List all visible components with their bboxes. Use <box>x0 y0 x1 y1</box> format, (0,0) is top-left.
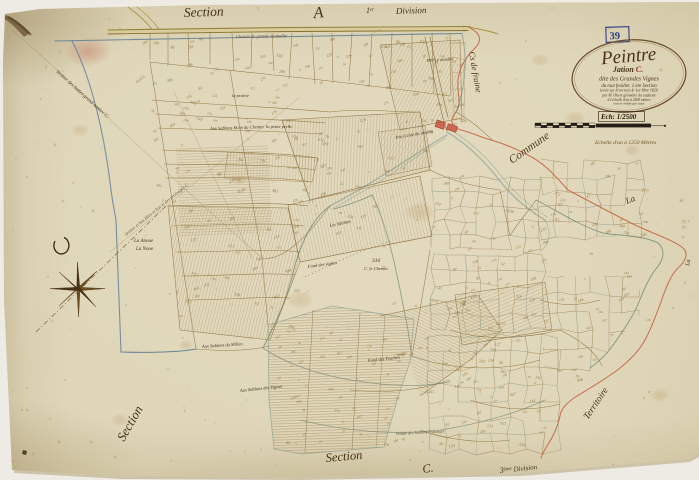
svg-text:358: 358 <box>412 91 419 97</box>
svg-text:206: 206 <box>578 354 584 359</box>
svg-text:91: 91 <box>242 187 246 192</box>
svg-text:164: 164 <box>183 118 189 123</box>
svg-text:210: 210 <box>381 45 387 49</box>
svg-text:190: 190 <box>443 181 449 185</box>
svg-text:358: 358 <box>516 295 522 299</box>
svg-text:86: 86 <box>199 36 204 42</box>
svg-text:42: 42 <box>286 441 290 445</box>
svg-text:121: 121 <box>388 155 394 161</box>
svg-text:La Anoue: La Anoue <box>133 239 154 244</box>
svg-text:287: 287 <box>319 131 325 136</box>
svg-text:61: 61 <box>682 225 687 230</box>
svg-text:355: 355 <box>260 55 266 59</box>
svg-text:visé et vérifié par nous: visé et vérifié par nous <box>614 102 646 106</box>
svg-text:Ech: 1/2500: Ech: 1/2500 <box>600 113 637 121</box>
svg-text:La Noue: La Noue <box>135 247 154 252</box>
svg-text:120: 120 <box>359 117 366 123</box>
svg-text:Echelle d'un à 1250 Mètres: Echelle d'un à 1250 Mètres <box>594 140 656 146</box>
svg-text:201: 201 <box>479 358 486 364</box>
svg-text:383: 383 <box>439 441 445 446</box>
svg-text:192: 192 <box>359 80 365 84</box>
svg-text:La: La <box>685 259 692 267</box>
svg-text:20: 20 <box>294 137 298 141</box>
svg-text:264: 264 <box>256 257 262 261</box>
svg-text:113: 113 <box>646 318 651 322</box>
svg-text:Jation C.: Jation C. <box>612 65 643 74</box>
svg-text:299: 299 <box>592 222 598 227</box>
svg-text:135: 135 <box>387 85 392 90</box>
svg-text:164: 164 <box>499 385 505 390</box>
svg-text:301: 301 <box>294 231 300 235</box>
svg-text:180: 180 <box>305 64 311 69</box>
svg-text:121: 121 <box>287 119 292 123</box>
svg-text:273: 273 <box>185 300 191 304</box>
svg-text:134: 134 <box>488 357 494 363</box>
svg-text:107: 107 <box>302 142 308 147</box>
svg-text:83: 83 <box>267 227 271 232</box>
svg-text:351: 351 <box>228 243 234 248</box>
svg-text:368: 368 <box>465 308 470 312</box>
svg-text:389: 389 <box>397 59 403 63</box>
svg-text:160: 160 <box>247 120 252 124</box>
svg-text:365: 365 <box>272 101 278 105</box>
svg-text:Section: Section <box>184 4 224 20</box>
svg-text:321: 321 <box>500 420 507 426</box>
svg-text:238: 238 <box>572 368 577 372</box>
svg-text:la petite prelle: la petite prelle <box>266 124 292 129</box>
svg-text:128: 128 <box>268 61 273 65</box>
svg-text:180: 180 <box>236 178 241 182</box>
svg-text:207: 207 <box>447 307 453 311</box>
svg-text:311: 311 <box>429 390 435 394</box>
svg-text:398: 398 <box>194 294 200 298</box>
svg-text:141: 141 <box>559 298 565 302</box>
svg-text:53: 53 <box>316 47 320 51</box>
svg-text:377: 377 <box>346 54 353 59</box>
svg-text:341: 341 <box>320 355 326 359</box>
svg-text:242: 242 <box>356 226 362 230</box>
svg-text:358: 358 <box>357 145 363 149</box>
svg-text:la prairie: la prairie <box>232 93 249 98</box>
svg-text:133: 133 <box>212 94 217 98</box>
svg-text:328: 328 <box>293 224 299 229</box>
svg-text:256: 256 <box>480 430 486 434</box>
svg-text:168: 168 <box>153 41 159 45</box>
svg-text:127: 127 <box>285 269 290 273</box>
svg-text:137: 137 <box>539 431 544 435</box>
svg-text:116: 116 <box>598 310 603 314</box>
svg-text:163: 163 <box>296 400 302 404</box>
svg-text:375: 375 <box>328 388 334 392</box>
svg-text:32: 32 <box>501 262 505 266</box>
svg-text:183: 183 <box>557 369 562 373</box>
svg-text:382: 382 <box>302 188 308 193</box>
svg-text:319: 319 <box>322 141 328 146</box>
svg-text:295: 295 <box>382 338 388 342</box>
svg-text:368: 368 <box>619 224 625 228</box>
svg-text:265: 265 <box>451 122 457 127</box>
svg-text:132: 132 <box>542 426 547 430</box>
svg-text:277: 277 <box>452 315 457 319</box>
svg-text:56: 56 <box>499 361 503 365</box>
svg-text:203: 203 <box>418 346 423 350</box>
svg-text:83: 83 <box>401 353 405 357</box>
svg-text:C.: C. <box>421 461 434 476</box>
svg-text:246: 246 <box>245 66 250 70</box>
svg-text:10: 10 <box>589 252 593 256</box>
svg-text:dite des Grandes Vignes: dite des Grandes Vignes <box>599 76 659 83</box>
svg-text:203: 203 <box>391 70 397 74</box>
svg-text:A: A <box>312 4 324 22</box>
svg-text:247: 247 <box>586 326 592 330</box>
svg-text:110: 110 <box>235 250 241 254</box>
svg-text:272: 272 <box>528 249 533 253</box>
svg-text:57: 57 <box>369 54 373 58</box>
svg-text:251: 251 <box>294 288 300 293</box>
svg-text:24: 24 <box>569 210 573 214</box>
svg-text:Chemin de grande vicinalité: Chemin de grande vicinalité <box>236 33 288 39</box>
svg-text:181: 181 <box>604 173 611 179</box>
svg-text:325: 325 <box>473 380 478 384</box>
svg-text:256: 256 <box>627 274 633 279</box>
svg-text:282: 282 <box>291 349 297 354</box>
svg-text:211: 211 <box>487 423 493 428</box>
svg-text:179: 179 <box>294 218 300 222</box>
svg-text:Division: Division <box>395 5 427 16</box>
svg-text:344: 344 <box>384 169 389 173</box>
svg-text:59: 59 <box>153 82 157 86</box>
svg-text:97: 97 <box>453 268 457 272</box>
svg-text:316: 316 <box>237 190 243 194</box>
svg-text:360: 360 <box>643 220 648 224</box>
svg-text:316: 316 <box>371 258 381 264</box>
svg-text:228: 228 <box>292 166 297 170</box>
svg-text:70: 70 <box>325 134 329 139</box>
svg-text:221: 221 <box>352 406 357 410</box>
svg-text:177: 177 <box>276 87 281 92</box>
svg-text:157: 157 <box>522 410 528 414</box>
svg-text:321: 321 <box>639 212 645 216</box>
svg-text:389: 389 <box>523 316 528 320</box>
svg-text:110: 110 <box>321 163 327 168</box>
svg-text:347: 347 <box>531 312 537 317</box>
